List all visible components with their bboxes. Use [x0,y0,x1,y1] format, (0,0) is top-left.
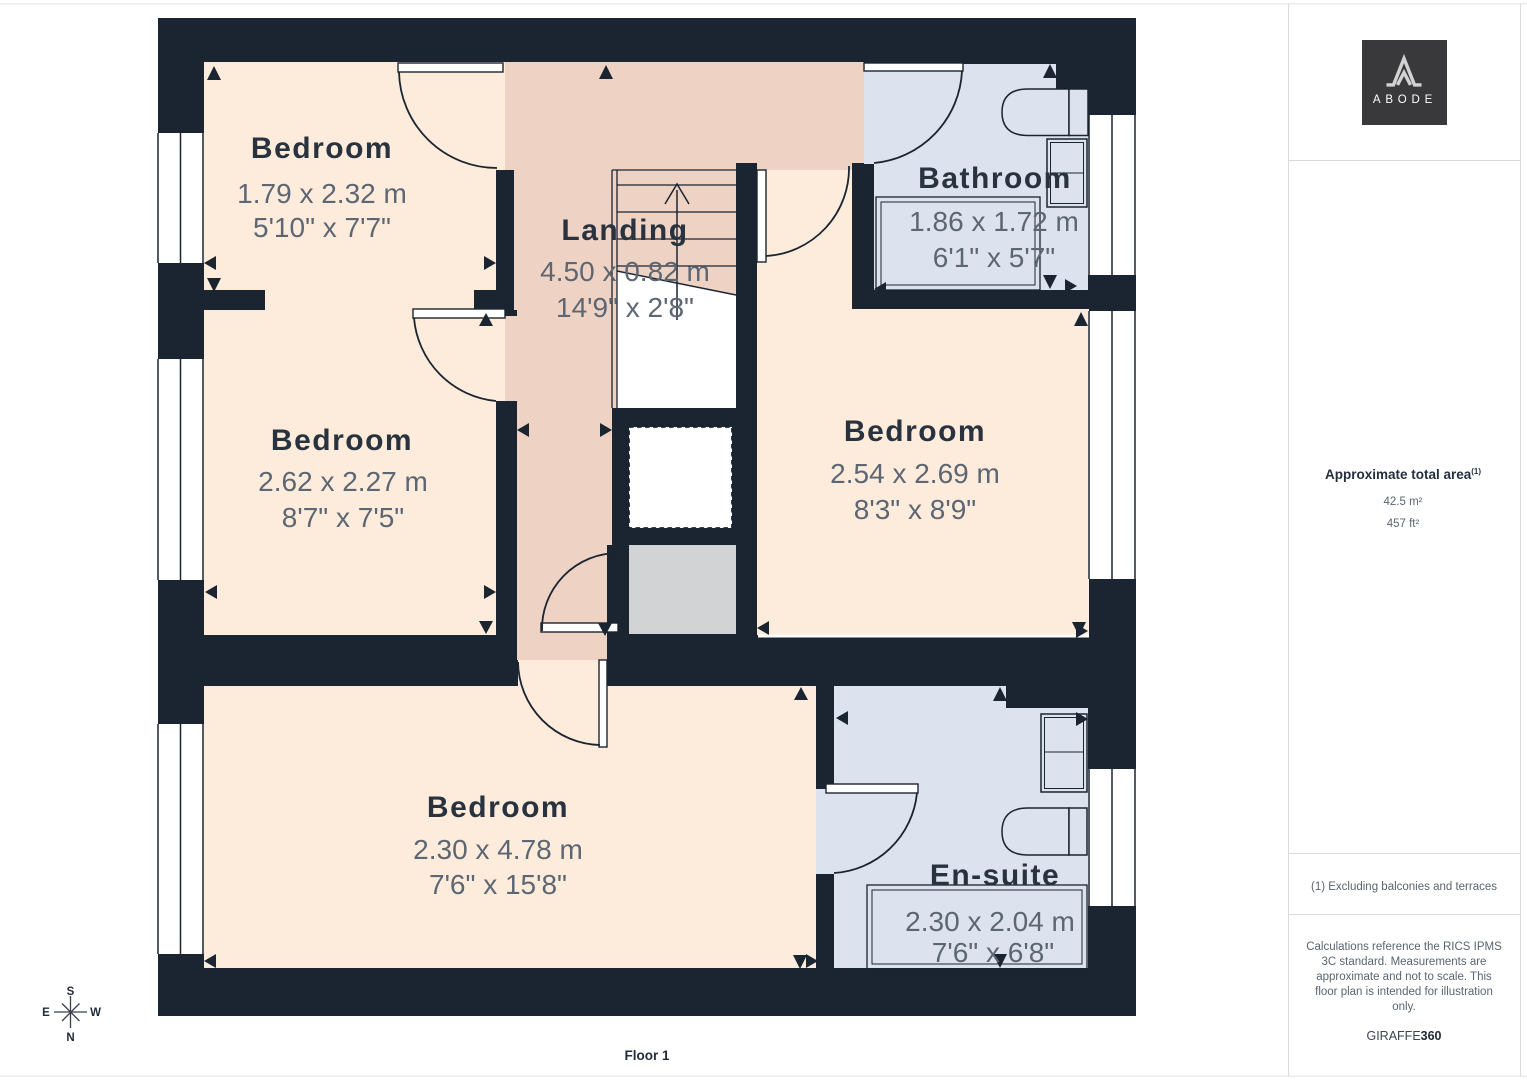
svg-text:floor plan is intended for ill: floor plan is intended for illustration [1315,986,1493,998]
svg-text:4.50 x 0.82 m: 4.50 x 0.82 m [540,256,710,287]
svg-text:457 ft²: 457 ft² [1387,518,1420,530]
svg-text:1.79 x 2.32 m: 1.79 x 2.32 m [237,178,407,209]
svg-text:Landing: Landing [561,214,688,247]
svg-text:Bedroom: Bedroom [427,791,569,824]
svg-text:W: W [90,1007,101,1019]
svg-text:8'3" x 8'9": 8'3" x 8'9" [854,494,976,525]
svg-text:42.5 m²: 42.5 m² [1384,496,1423,508]
svg-text:Calculations reference the RIC: Calculations reference the RICS IPMS [1306,941,1502,953]
svg-text:2.30 x 2.04 m: 2.30 x 2.04 m [905,906,1075,937]
svg-text:En-suite: En-suite [930,859,1060,892]
svg-text:1.86 x 1.72 m: 1.86 x 1.72 m [909,206,1079,237]
svg-text:(1) Excluding balconies and te: (1) Excluding balconies and terraces [1311,881,1497,893]
svg-text:ABODE: ABODE [1373,94,1437,106]
svg-text:5'10" x 7'7": 5'10" x 7'7" [253,212,391,243]
svg-text:3C standard. Measurements are: 3C standard. Measurements are [1322,956,1487,968]
svg-text:Bedroom: Bedroom [844,415,986,448]
svg-text:7'6" x 6'8": 7'6" x 6'8" [932,937,1054,968]
svg-text:8'7" x 7'5": 8'7" x 7'5" [282,502,404,533]
svg-text:2.30 x 4.78 m: 2.30 x 4.78 m [413,834,583,865]
svg-text:Bathroom: Bathroom [918,162,1072,195]
svg-text:2.54 x 2.69 m: 2.54 x 2.69 m [830,458,1000,489]
svg-text:14'9" x 2'8": 14'9" x 2'8" [556,292,694,323]
svg-text:7'6" x 15'8": 7'6" x 15'8" [429,869,567,900]
svg-text:only.: only. [1392,1001,1415,1013]
svg-text:E: E [42,1007,50,1019]
svg-text:approximate and not to scale.: approximate and not to scale. This [1316,971,1492,983]
svg-text:Approximate total area(1): Approximate total area(1) [1325,467,1481,482]
svg-text:Floor 1: Floor 1 [624,1048,669,1063]
svg-text:6'1" x 5'7": 6'1" x 5'7" [933,242,1055,273]
svg-text:Bedroom: Bedroom [251,132,393,165]
svg-text:N: N [66,1032,74,1044]
svg-text:2.62 x 2.27 m: 2.62 x 2.27 m [258,466,428,497]
svg-text:GIRAFFE360: GIRAFFE360 [1366,1029,1441,1043]
svg-text:Bedroom: Bedroom [271,424,413,457]
svg-text:S: S [67,986,75,998]
